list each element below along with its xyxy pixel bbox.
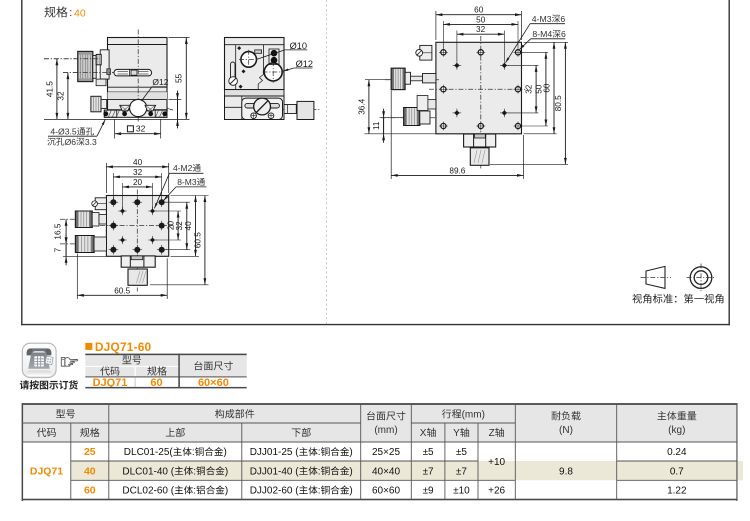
svg-text:1.22: 1.22 bbox=[667, 486, 687, 497]
svg-text:): ) bbox=[225, 466, 228, 477]
svg-text:41.5: 41.5 bbox=[45, 81, 54, 97]
svg-text:X: X bbox=[420, 428, 427, 439]
svg-text:6: 6 bbox=[561, 29, 566, 39]
svg-text:DCL02-60 (: DCL02-60 ( bbox=[122, 486, 174, 497]
svg-text:4-M2: 4-M2 bbox=[173, 163, 193, 173]
svg-text:60: 60 bbox=[474, 6, 484, 15]
svg-text:4-Ø3.5: 4-Ø3.5 bbox=[50, 127, 76, 137]
svg-text:6: 6 bbox=[560, 14, 565, 24]
svg-text:0.24: 0.24 bbox=[667, 447, 687, 458]
svg-text:): ) bbox=[349, 466, 352, 477]
svg-text::: : bbox=[193, 486, 196, 497]
svg-text:40×40: 40×40 bbox=[372, 466, 401, 477]
svg-text:36.4: 36.4 bbox=[357, 98, 366, 114]
svg-text::: : bbox=[318, 466, 321, 477]
svg-text:40: 40 bbox=[84, 465, 96, 477]
svg-text:): ) bbox=[224, 447, 227, 458]
svg-text:): ) bbox=[349, 447, 352, 458]
svg-text:DJJ02-60 (: DJJ02-60 ( bbox=[250, 486, 300, 497]
svg-text:±9: ±9 bbox=[423, 486, 434, 497]
svg-text::: : bbox=[318, 486, 321, 497]
svg-text:40: 40 bbox=[184, 221, 193, 231]
svg-text:60.5: 60.5 bbox=[193, 232, 202, 248]
svg-text:DJJ01-25 (: DJJ01-25 ( bbox=[250, 447, 300, 458]
svg-text:40: 40 bbox=[133, 158, 143, 167]
svg-text:9.8: 9.8 bbox=[559, 466, 573, 477]
svg-text:7: 7 bbox=[54, 247, 63, 252]
svg-text::: : bbox=[192, 447, 195, 458]
svg-text:55: 55 bbox=[175, 74, 184, 84]
svg-text:±5: ±5 bbox=[423, 447, 434, 458]
svg-text:0.7: 0.7 bbox=[670, 466, 684, 477]
svg-text:Ø6: Ø6 bbox=[65, 137, 77, 147]
svg-text:89.6: 89.6 bbox=[449, 166, 465, 175]
svg-text:±7: ±7 bbox=[423, 466, 434, 477]
svg-text:Ø12: Ø12 bbox=[152, 77, 168, 87]
svg-text:60: 60 bbox=[84, 485, 96, 497]
svg-text:): ) bbox=[349, 486, 352, 497]
svg-text::: : bbox=[69, 7, 72, 19]
svg-text:32: 32 bbox=[136, 124, 146, 134]
svg-text:Y: Y bbox=[453, 428, 460, 439]
svg-text:7: 7 bbox=[166, 107, 175, 112]
svg-text:8-M4: 8-M4 bbox=[532, 29, 552, 39]
svg-text:20: 20 bbox=[133, 178, 143, 187]
svg-text:32: 32 bbox=[175, 221, 184, 231]
svg-text:25×25: 25×25 bbox=[372, 447, 401, 458]
svg-text:32: 32 bbox=[133, 168, 143, 177]
svg-text:40: 40 bbox=[74, 7, 86, 19]
svg-text:DJQ71: DJQ71 bbox=[30, 465, 63, 477]
svg-text:(kg): (kg) bbox=[668, 425, 685, 436]
svg-text:60: 60 bbox=[542, 83, 551, 93]
svg-text:Z: Z bbox=[489, 428, 495, 439]
svg-text:±10: ±10 bbox=[453, 486, 470, 497]
svg-text:DJJ01-40 (: DJJ01-40 ( bbox=[250, 466, 300, 477]
svg-text:11: 11 bbox=[372, 121, 381, 130]
svg-text:60×60: 60×60 bbox=[372, 486, 401, 497]
svg-text:4-M3: 4-M3 bbox=[532, 14, 552, 24]
svg-text:+26: +26 bbox=[488, 486, 505, 497]
svg-text:60.5: 60.5 bbox=[114, 286, 130, 295]
svg-text:±5: ±5 bbox=[456, 447, 467, 458]
svg-text:(N): (N) bbox=[559, 425, 573, 436]
svg-text:): ) bbox=[225, 486, 228, 497]
svg-text:+10: +10 bbox=[488, 457, 505, 468]
svg-text:32: 32 bbox=[476, 25, 486, 34]
svg-text:50: 50 bbox=[476, 15, 486, 24]
svg-text:DLC01-25(: DLC01-25( bbox=[124, 447, 174, 458]
svg-text:3.3: 3.3 bbox=[85, 137, 97, 147]
svg-text:32: 32 bbox=[56, 91, 65, 101]
svg-text:32: 32 bbox=[525, 84, 534, 94]
svg-text:20: 20 bbox=[167, 221, 176, 231]
svg-text:8-M3: 8-M3 bbox=[177, 177, 197, 187]
svg-text:80.5: 80.5 bbox=[554, 95, 563, 111]
svg-text:(mm): (mm) bbox=[374, 425, 397, 436]
svg-text:16.5: 16.5 bbox=[54, 223, 63, 239]
svg-text:(mm): (mm) bbox=[462, 410, 485, 421]
svg-text::: : bbox=[318, 447, 321, 458]
svg-text:±7: ±7 bbox=[456, 466, 467, 477]
svg-text::: : bbox=[193, 466, 196, 477]
svg-text:DLC01-40 (: DLC01-40 ( bbox=[122, 466, 174, 477]
svg-text:25: 25 bbox=[84, 446, 96, 458]
svg-text:DJQ71-60: DJQ71-60 bbox=[95, 340, 152, 354]
